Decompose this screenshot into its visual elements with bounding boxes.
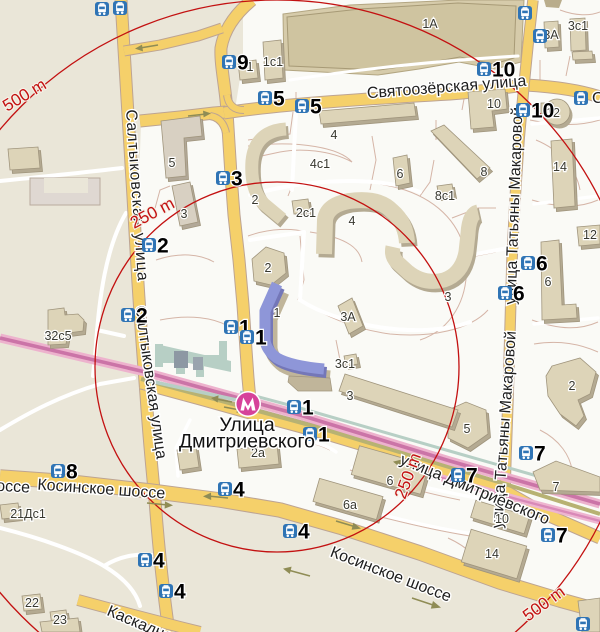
svg-text:4: 4 <box>174 581 186 604</box>
svg-text:3: 3 <box>445 290 452 304</box>
svg-text:6: 6 <box>397 167 404 181</box>
svg-text:8: 8 <box>481 165 488 179</box>
svg-text:9: 9 <box>237 52 249 75</box>
svg-text:6: 6 <box>513 283 525 306</box>
svg-text:14: 14 <box>553 160 567 174</box>
svg-text:10: 10 <box>487 97 501 111</box>
svg-text:2: 2 <box>569 379 576 393</box>
svg-text:7: 7 <box>556 525 568 548</box>
svg-text:3: 3 <box>181 207 188 221</box>
svg-text:3А: 3А <box>340 310 356 324</box>
svg-text:7: 7 <box>553 480 560 494</box>
svg-text:21Дс1: 21Дс1 <box>10 507 46 521</box>
svg-text:оссе: оссе <box>0 478 31 497</box>
svg-text:3: 3 <box>347 389 354 403</box>
svg-text:22: 22 <box>25 596 39 610</box>
svg-text:5: 5 <box>273 88 285 111</box>
svg-text:6: 6 <box>545 275 552 289</box>
svg-text:1: 1 <box>274 306 281 320</box>
svg-text:5: 5 <box>169 156 176 170</box>
svg-text:7: 7 <box>534 443 546 466</box>
svg-text:С: С <box>592 90 600 107</box>
svg-text:2: 2 <box>136 305 148 328</box>
svg-text:1: 1 <box>318 424 330 447</box>
svg-text:6а: 6а <box>343 498 357 512</box>
svg-text:4: 4 <box>153 550 165 573</box>
svg-text:12: 12 <box>583 228 597 242</box>
svg-text:32с5: 32с5 <box>44 329 71 343</box>
svg-text:8с1: 8с1 <box>435 189 455 203</box>
svg-text:6: 6 <box>387 474 394 488</box>
svg-text:3: 3 <box>231 168 243 191</box>
svg-text:8: 8 <box>66 461 78 484</box>
svg-text:1: 1 <box>302 397 314 420</box>
svg-text:10: 10 <box>492 59 515 82</box>
svg-text:5: 5 <box>464 422 471 436</box>
svg-text:23: 23 <box>53 613 67 627</box>
svg-text:10: 10 <box>495 512 509 526</box>
svg-text:3с1: 3с1 <box>568 19 588 33</box>
svg-text:14: 14 <box>485 547 499 561</box>
svg-text:4: 4 <box>331 128 338 142</box>
svg-text:1: 1 <box>255 327 267 350</box>
svg-text:7: 7 <box>466 465 478 488</box>
svg-text:10: 10 <box>531 100 554 123</box>
svg-text:6: 6 <box>536 253 548 276</box>
svg-text:4: 4 <box>233 479 245 502</box>
svg-text:2с1: 2с1 <box>296 206 316 220</box>
svg-text:4с1: 4с1 <box>310 157 330 171</box>
svg-text:3с1: 3с1 <box>335 357 355 371</box>
svg-text:Дмитриевского: Дмитриевского <box>179 431 315 453</box>
svg-text:1А: 1А <box>422 17 438 31</box>
svg-text:2: 2 <box>265 261 272 275</box>
svg-text:4: 4 <box>298 521 310 544</box>
svg-text:5: 5 <box>310 96 322 119</box>
svg-text:4: 4 <box>349 214 356 228</box>
svg-text:2: 2 <box>252 193 259 207</box>
svg-text:1с1: 1с1 <box>263 55 283 69</box>
svg-text:2: 2 <box>157 235 169 258</box>
